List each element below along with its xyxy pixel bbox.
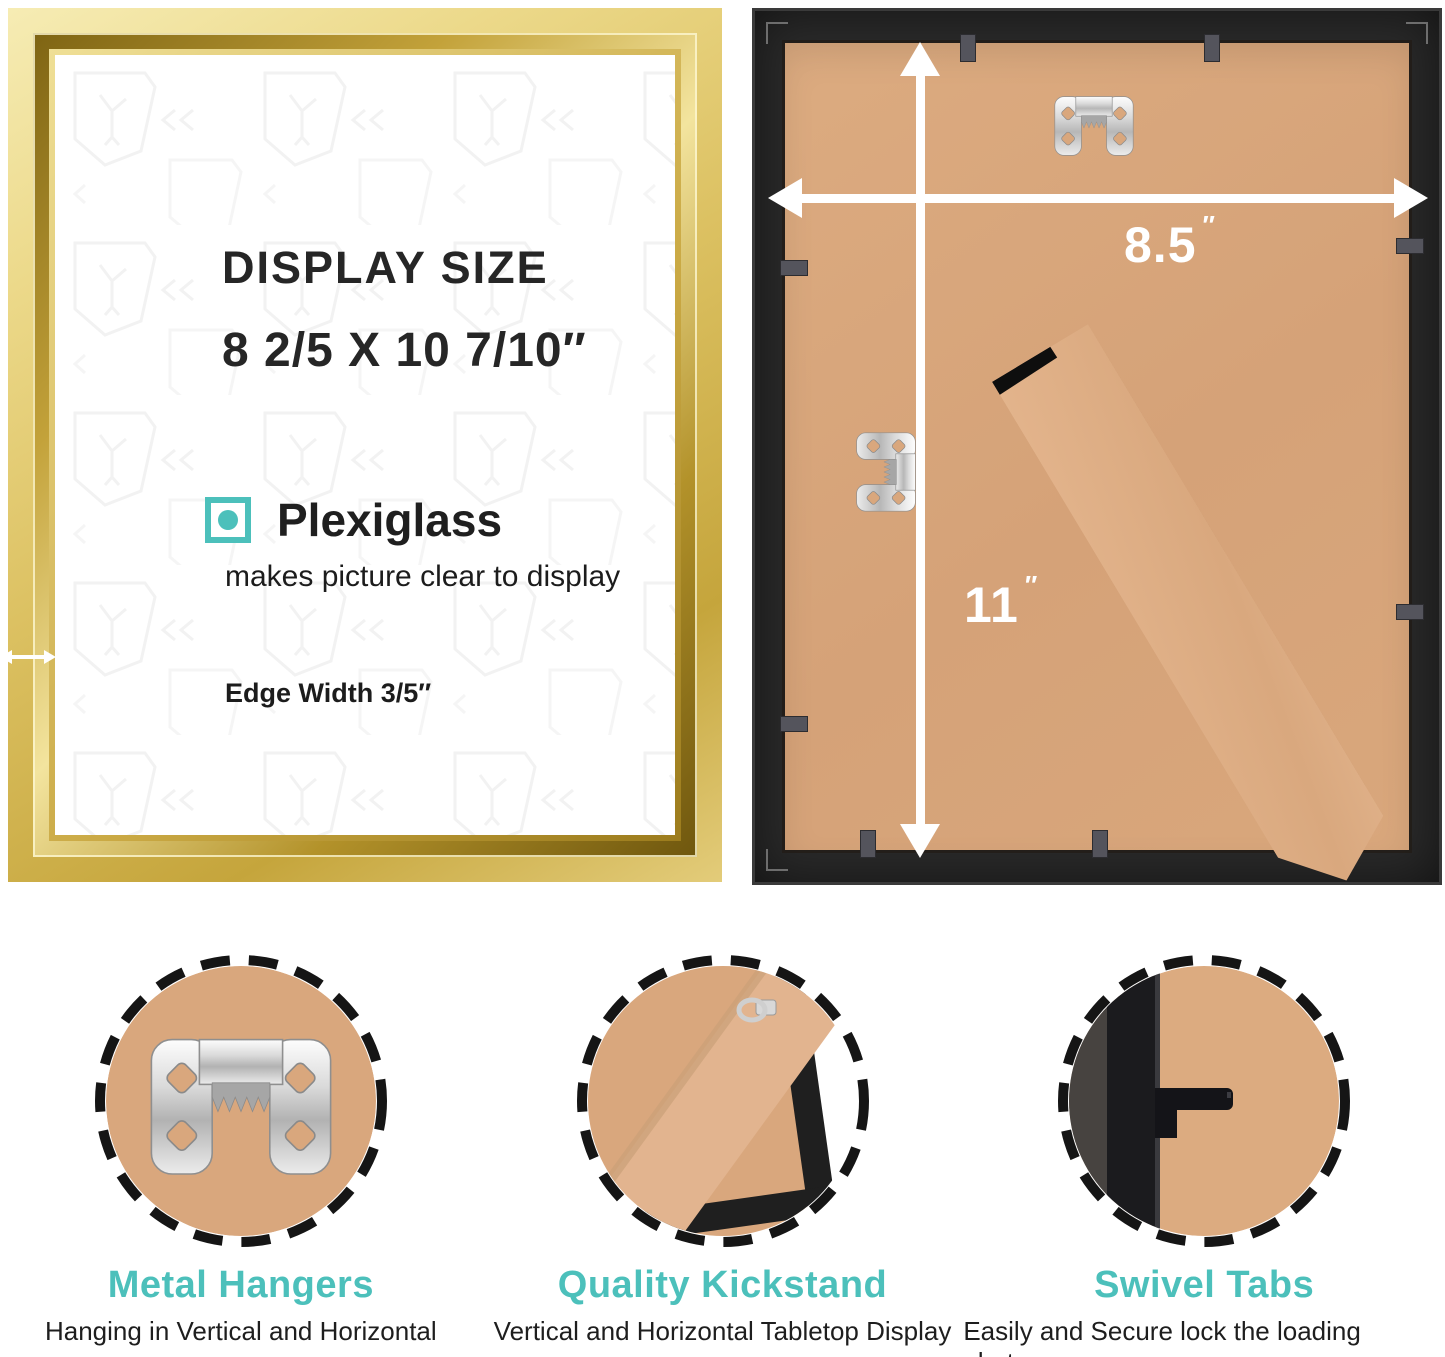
plexiglass-label: Plexiglass	[277, 493, 502, 547]
display-size-value: 8 2/5 X 10 7/10″	[222, 323, 587, 378]
swivel-tab	[860, 830, 876, 858]
kickstand-corner-icon	[570, 948, 876, 1254]
feature-title: Quality Kickstand	[558, 1264, 887, 1307]
plexiglass-feature-row: Plexiglass	[205, 493, 502, 547]
feature-metal-hangers: Metal Hangers Hanging in Vertical and Ho…	[0, 948, 482, 1357]
swivel-tab	[1396, 604, 1424, 620]
product-infographic: DISPLAY SIZE 8 2/5 X 10 7/10″ Plexiglass…	[0, 0, 1445, 1357]
swivel-tab	[1396, 238, 1424, 254]
feature-subtitle: Hanging in Vertical and Horizontal	[45, 1316, 437, 1347]
height-arrow-head-down	[900, 824, 940, 858]
feature-subtitle: Vertical and Horizontal Tabletop Display	[494, 1316, 952, 1347]
feature-title: Swivel Tabs	[1094, 1264, 1314, 1307]
plexiglass-checkbox-dot	[218, 510, 238, 530]
swivel-tab	[960, 34, 976, 62]
height-arrow-head-up	[900, 42, 940, 76]
frame-back: 8.5″ 11″	[752, 8, 1442, 885]
sawtooth-hanger-icon	[88, 948, 394, 1254]
swivel-tab-icon	[1051, 948, 1357, 1254]
width-dimension-label: 8.5″	[1124, 210, 1216, 274]
display-size-title: DISPLAY SIZE	[222, 242, 549, 294]
swivel-tab	[1092, 830, 1108, 858]
watermark-pattern	[55, 55, 675, 835]
frame-interior: DISPLAY SIZE 8 2/5 X 10 7/10″ Plexiglass…	[55, 55, 675, 835]
gold-frame-front: DISPLAY SIZE 8 2/5 X 10 7/10″ Plexiglass…	[8, 8, 722, 882]
feature-title: Metal Hangers	[108, 1264, 374, 1307]
feature-swivel-tabs: Swivel Tabs Easily and Secure lock the l…	[963, 948, 1445, 1357]
plexiglass-description: makes picture clear to display	[225, 560, 620, 594]
swivel-tab	[780, 260, 808, 276]
swivel-tab	[780, 716, 808, 732]
feature-subtitle: Easily and Secure lock the loading photo…	[963, 1316, 1445, 1357]
sawtooth-hanger-icon	[852, 430, 920, 514]
sawtooth-hanger-icon	[1052, 92, 1136, 160]
feature-callouts: Metal Hangers Hanging in Vertical and Ho…	[0, 948, 1445, 1357]
edge-width-arrow-icon	[0, 646, 56, 668]
width-arrow-icon	[800, 194, 1396, 203]
height-dimension-label: 11″	[964, 570, 1038, 634]
width-arrow-head-right	[1394, 178, 1428, 218]
feature-quality-kickstand: Quality Kickstand Vertical and Horizonta…	[482, 948, 964, 1357]
swivel-tab	[1204, 34, 1220, 62]
height-arrow-icon	[916, 72, 925, 828]
edge-width-label: Edge Width 3/5″	[225, 678, 431, 709]
plexiglass-checkbox-icon	[205, 497, 251, 543]
width-arrow-head-left	[768, 178, 802, 218]
